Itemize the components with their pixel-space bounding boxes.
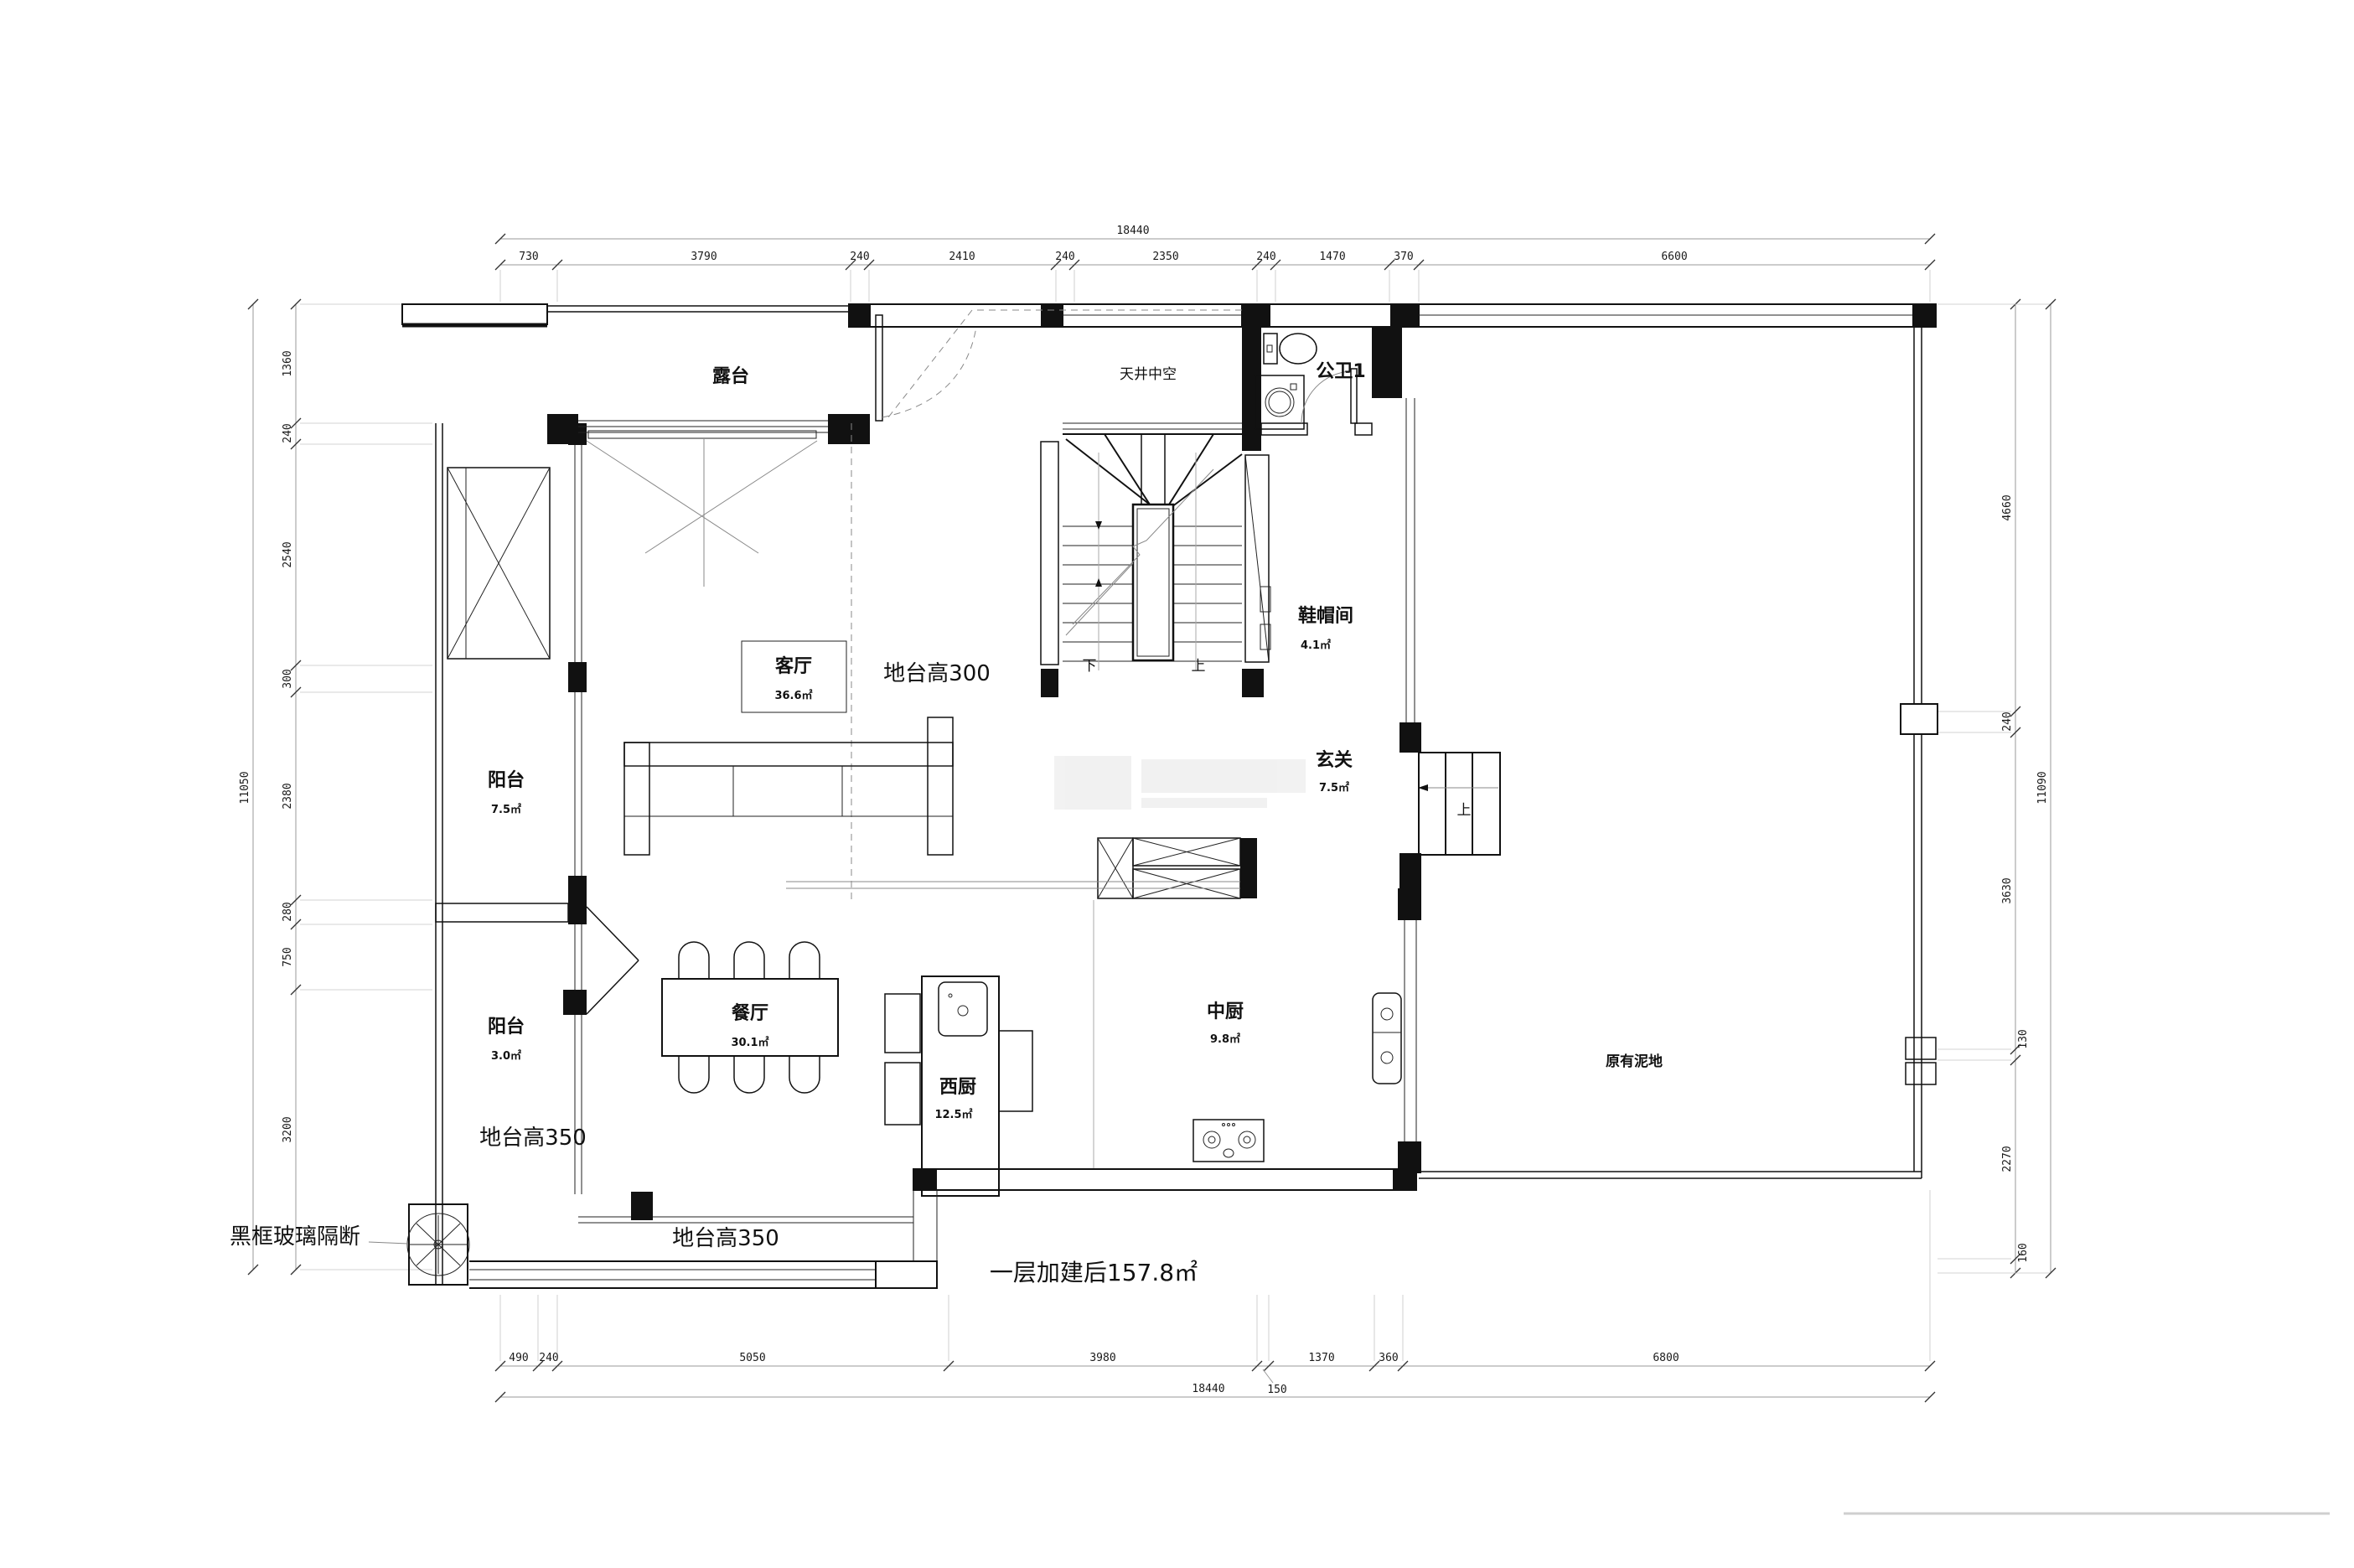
room-cloak-area: 4.1㎡: [1301, 639, 1331, 652]
stair-up-label: 上: [1192, 658, 1206, 675]
walls-top: [402, 304, 1936, 327]
dim: 2350: [1152, 251, 1178, 263]
dim: 4660: [2001, 494, 2014, 520]
dim: 160: [2017, 1243, 2030, 1262]
room-void-label: 天井中空: [1120, 366, 1177, 383]
dim: 6600: [1661, 251, 1687, 263]
dim: 5050: [739, 1352, 765, 1364]
dim: 3790: [691, 251, 717, 263]
room-chinese-kitchen-area: 9.8㎡: [1210, 1032, 1240, 1046]
dim-chain-top: 18440 730 3790 240 2410 240 2350 240 147…: [495, 225, 1935, 302]
bottom-zone: 地台高350 黑框玻璃隔断 一层加建后157.8㎡: [230, 1190, 1198, 1288]
room-balcony-upper-area: 7.5㎡: [491, 803, 521, 816]
dim: 240: [539, 1352, 558, 1364]
room-west-kitchen-area: 12.5㎡: [934, 1108, 972, 1121]
dim: 280: [282, 902, 294, 921]
dim: 1360: [282, 350, 294, 376]
room-balcony-lower-label: 阳台: [488, 1016, 525, 1038]
dim: 240: [282, 423, 294, 442]
dim-chain-right: 4660 240 3630 130 2270 160 11090: [1938, 299, 2056, 1278]
dim: 2540: [282, 541, 294, 567]
room-living-area: 36.6㎡: [774, 689, 812, 702]
dim-bottom-total: 18440: [1192, 1383, 1224, 1395]
dim: 360: [1379, 1352, 1398, 1364]
dim: 370: [1394, 251, 1413, 263]
dim-left-total: 11050: [239, 771, 251, 804]
room-living-label: 客厅: [775, 655, 812, 677]
dim: 1470: [1319, 251, 1345, 263]
floorplan-canvas: 18440 730 3790 240 2410 240 2350 240 147…: [0, 0, 2354, 1568]
tree-symbol: [407, 1214, 469, 1276]
dim: 730: [519, 251, 538, 263]
room-bath-label: 公卫1: [1316, 361, 1365, 382]
dim: 130: [2017, 1029, 2030, 1048]
living-room: 客厅 36.6㎡ 地台高300: [624, 423, 1240, 902]
dim: 2410: [949, 251, 975, 263]
dim: 2270: [2001, 1146, 2014, 1172]
room-foyer-label: 玄关: [1316, 749, 1353, 771]
dim: 1370: [1308, 1352, 1334, 1364]
dim: 750: [282, 947, 294, 966]
platform-350-bottom-label: 地台高350: [672, 1226, 779, 1251]
entry-up-label: 上: [1457, 802, 1472, 819]
dim: 240: [2001, 712, 2014, 731]
dim: 300: [282, 669, 294, 688]
dim-right-total: 11090: [2036, 771, 2049, 804]
room-ground-label: 原有泥地: [1606, 1053, 1663, 1070]
west-kitchen: 西厨 12.5㎡: [885, 976, 1032, 1196]
dim: 3630: [2001, 877, 2014, 903]
room-dining-label: 餐厅: [732, 1003, 768, 1024]
balcony-left: 阳台 7.5㎡ 阳台 3.0㎡ 地台高350: [436, 423, 639, 1285]
dim-chain-bottom: 490 240 5050 3980 150 1370 360 6800 1844…: [495, 1190, 1935, 1402]
dim-top-total: 18440: [1116, 225, 1149, 237]
dim: 150: [1267, 1384, 1286, 1396]
dim: 240: [850, 251, 869, 263]
dim: 3980: [1089, 1352, 1115, 1364]
dim: 6800: [1653, 1352, 1679, 1364]
stairs: 下 上: [1041, 423, 1269, 697]
dining-room: 餐厅 30.1㎡: [662, 942, 838, 1093]
stair-down-label: 下: [1083, 658, 1097, 675]
room-chinese-kitchen-label: 中厨: [1207, 1001, 1244, 1022]
dim: 240: [1055, 251, 1074, 263]
room-west-kitchen-label: 西厨: [939, 1077, 976, 1098]
entry-closet: [1098, 838, 1257, 898]
dim-chain-left: 11050 1360 240 2540 300 2380 280 750 320…: [239, 299, 432, 1275]
dim: 2380: [282, 783, 294, 809]
room-balcony-lower-area: 3.0㎡: [491, 1049, 521, 1063]
dim: 490: [509, 1352, 528, 1364]
chinese-kitchen: 中厨 9.8㎡: [913, 900, 1416, 1190]
room-terrace-label: 露台: [712, 365, 749, 387]
platform-300-label: 地台高300: [883, 661, 991, 686]
foyer: 上 玄关 7.5㎡: [1316, 398, 1500, 1173]
watermark: [1054, 756, 1306, 810]
platform-350-left-label: 地台高350: [479, 1126, 587, 1151]
floor-total-label: 一层加建后157.8㎡: [990, 1259, 1198, 1286]
floorplan-drawing: 18440 730 3790 240 2410 240 2350 240 147…: [0, 0, 2354, 1568]
cloak-room: 鞋帽间 4.1㎡: [1260, 587, 1353, 652]
room-cloak-label: 鞋帽间: [1298, 606, 1353, 627]
room-foyer-area: 7.5㎡: [1319, 781, 1349, 794]
room-dining-area: 30.1㎡: [731, 1036, 768, 1049]
room-balcony-upper-label: 阳台: [488, 769, 525, 791]
glass-partition-label: 黑框玻璃隔断: [230, 1224, 360, 1250]
dim: 3200: [282, 1116, 294, 1142]
dim: 240: [1256, 251, 1275, 263]
bathroom: 公卫1: [1242, 327, 1402, 451]
